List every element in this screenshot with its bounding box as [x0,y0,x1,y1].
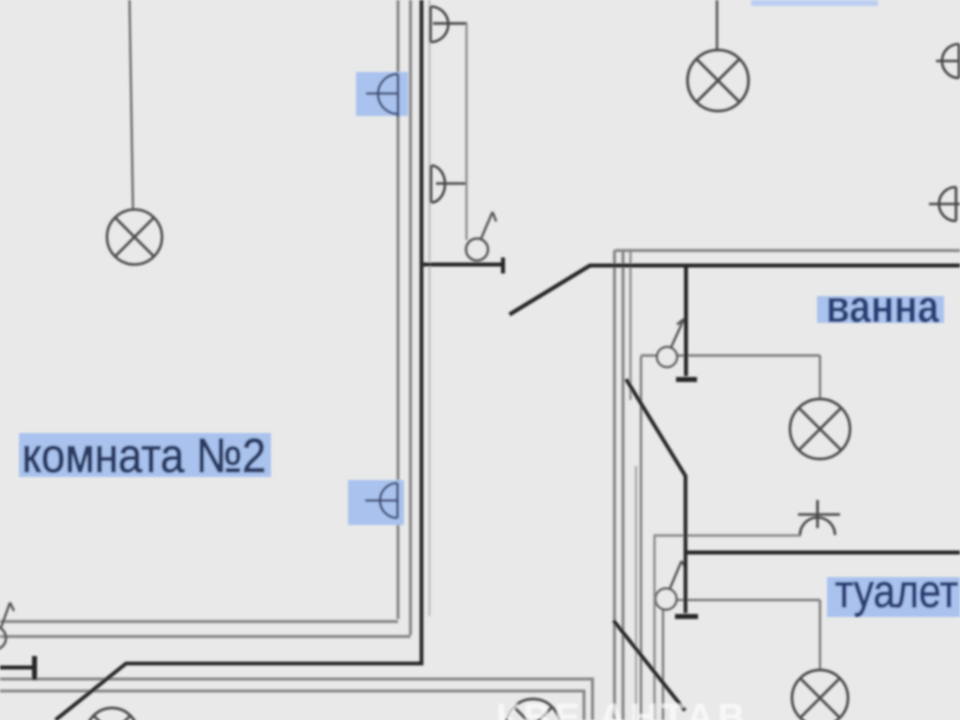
svg-text:комната №2: комната №2 [22,430,266,483]
svg-text:туалет: туалет [835,565,958,617]
svg-text:КВЕ АНТАВ: КВЕ АНТАВ [496,697,749,720]
svg-text:ванна: ванна [826,281,940,332]
